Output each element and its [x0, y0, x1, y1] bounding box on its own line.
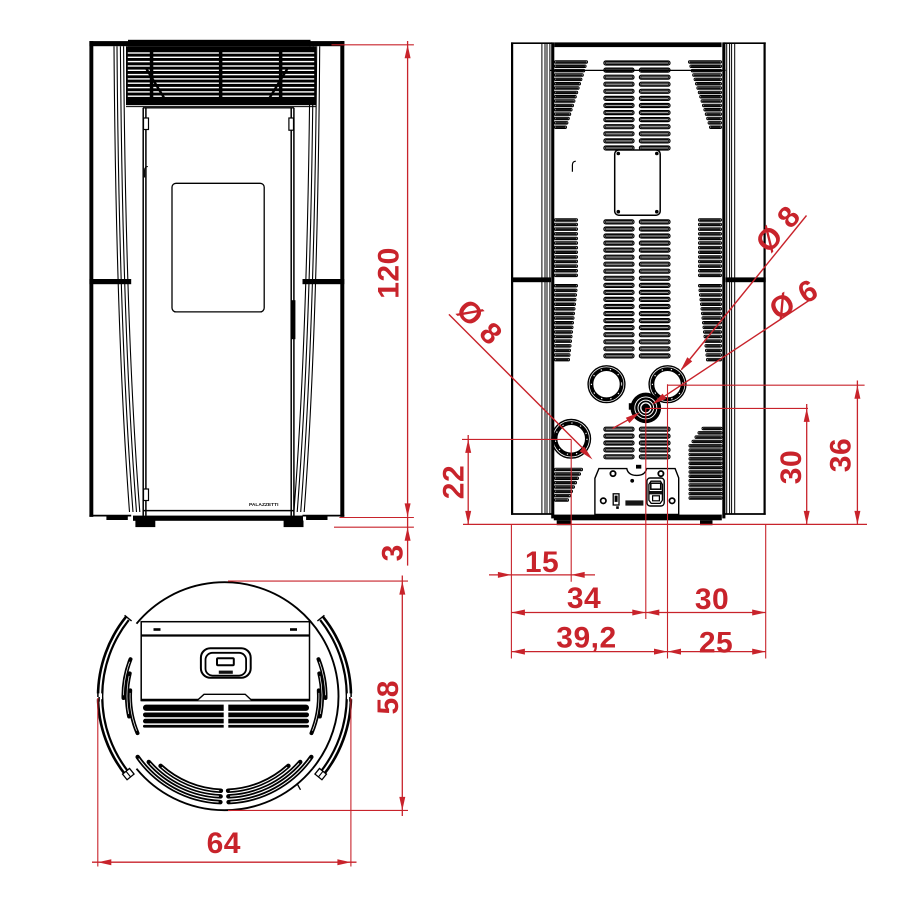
svg-text:39,2: 39,2	[556, 622, 616, 655]
svg-text:15: 15	[525, 546, 559, 579]
svg-text:22: 22	[437, 465, 470, 499]
svg-text:3: 3	[377, 544, 410, 561]
svg-text:25: 25	[699, 627, 733, 660]
svg-text:58: 58	[372, 680, 405, 714]
svg-text:30: 30	[695, 583, 729, 616]
svg-text:36: 36	[825, 438, 858, 472]
svg-text:34: 34	[567, 582, 601, 615]
svg-text:64: 64	[207, 827, 241, 860]
svg-text:30: 30	[775, 450, 808, 484]
svg-text:PALAZZETTI: PALAZZETTI	[249, 502, 279, 508]
svg-text:120: 120	[373, 247, 406, 299]
